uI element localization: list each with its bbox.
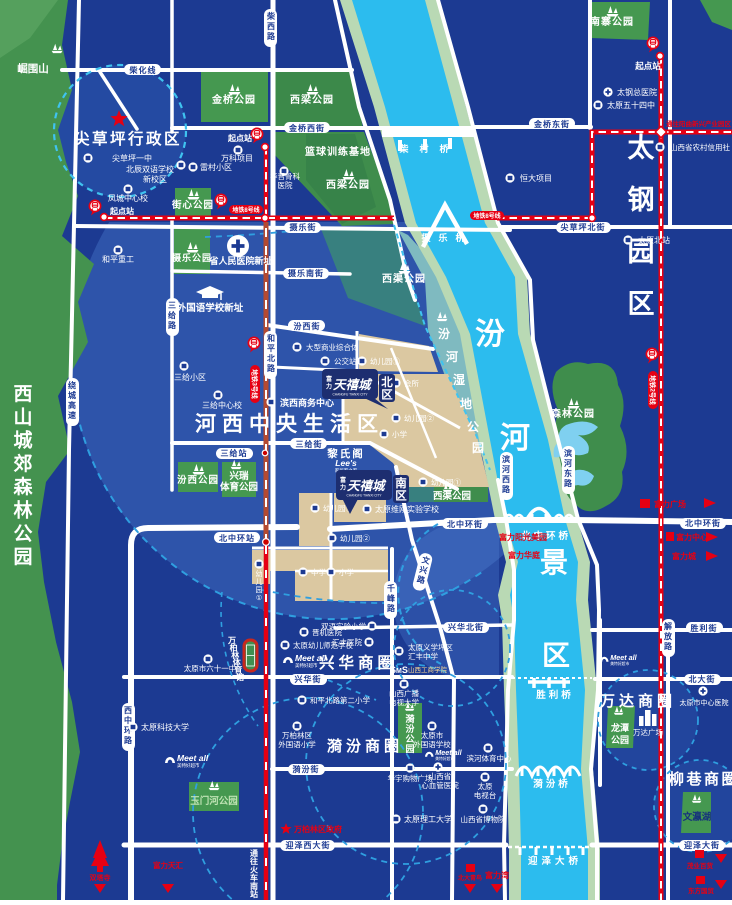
- svg-text:汾西街: 汾西街: [294, 321, 321, 331]
- svg-text:美特好超市: 美特好超市: [610, 661, 629, 666]
- svg-text:汾: 汾: [438, 326, 450, 341]
- svg-text:山西广播: 山西广播: [389, 688, 419, 698]
- svg-text:河: 河: [500, 422, 530, 455]
- svg-text:和: 和: [267, 333, 275, 343]
- svg-text:城: 城: [68, 390, 76, 400]
- svg-text:湿: 湿: [453, 372, 465, 387]
- svg-text:尖草坪行政区: 尖草坪行政区: [74, 129, 182, 148]
- svg-text:公: 公: [13, 523, 32, 545]
- svg-text:山西省农村信用社: 山西省农村信用社: [670, 142, 730, 152]
- svg-text:钢: 钢: [628, 185, 655, 215]
- svg-text:起点站: 起点站: [227, 133, 252, 143]
- svg-text:公园: 公园: [611, 735, 629, 745]
- svg-text:路: 路: [124, 735, 133, 745]
- svg-text:起点站: 起点站: [109, 206, 134, 216]
- svg-text:万达广场: 万达广场: [633, 727, 663, 737]
- svg-text:公: 公: [467, 420, 479, 434]
- svg-text:汇丰医院: 汇丰医院: [332, 637, 362, 647]
- svg-text:太原北站: 太原北站: [638, 235, 670, 245]
- svg-text:茂业百货: 茂业百货: [687, 861, 714, 870]
- svg-text:北大街: 北大街: [689, 674, 716, 684]
- svg-text:兴华商圈: 兴华商圈: [319, 653, 397, 672]
- svg-text:村: 村: [419, 143, 428, 154]
- svg-text:Meet all: Meet all: [610, 653, 637, 662]
- svg-text:迎泽西大街: 迎泽西大街: [286, 840, 331, 850]
- svg-text:幼儿园②: 幼儿园②: [404, 413, 434, 423]
- svg-text:恒大项目: 恒大项目: [520, 173, 552, 183]
- svg-text:金桥公园: 金桥公园: [211, 93, 256, 106]
- svg-text:路: 路: [267, 31, 276, 41]
- svg-text:和平重工: 和平重工: [102, 254, 134, 264]
- svg-text:地铁3号线: 地铁3号线: [251, 369, 260, 399]
- svg-text:富: 富: [326, 375, 332, 383]
- svg-text:外国语学校新址: 外国语学校新址: [176, 302, 244, 314]
- svg-text:西: 西: [267, 22, 275, 31]
- svg-text:摄乐公园: 摄乐公园: [172, 252, 212, 263]
- svg-text:解: 解: [664, 621, 672, 631]
- svg-text:通往阳曲新兴产业园区: 通往阳曲新兴产业园区: [666, 119, 732, 128]
- svg-text:电视大学: 电视大学: [389, 697, 419, 707]
- svg-text:滨河体育中心: 滨河体育中心: [467, 753, 512, 763]
- svg-text:三给小区: 三给小区: [174, 372, 206, 382]
- svg-text:胜利街: 胜利街: [690, 623, 718, 633]
- svg-text:河: 河: [502, 464, 510, 474]
- svg-text:园: 园: [472, 441, 484, 455]
- svg-text:河: 河: [564, 458, 572, 468]
- svg-text:三给站: 三给站: [221, 448, 248, 458]
- svg-text:地铁8号线: 地铁8号线: [232, 206, 259, 214]
- svg-text:太: 太: [628, 133, 656, 163]
- svg-text:崛围山: 崛围山: [17, 62, 49, 75]
- svg-text:南寨公园: 南寨公园: [590, 15, 634, 28]
- svg-text:汾西公园: 汾西公园: [177, 474, 219, 486]
- svg-text:太原科技大学: 太原科技大学: [141, 722, 189, 732]
- svg-text:玉门河公园: 玉门河公园: [190, 795, 238, 807]
- svg-text:北: 北: [267, 353, 275, 363]
- svg-text:幼儿园③: 幼儿园③: [370, 356, 400, 366]
- svg-text:区: 区: [628, 289, 655, 319]
- svg-text:漪汾街: 漪汾街: [293, 764, 320, 774]
- svg-text:龙潭: 龙潭: [610, 722, 629, 733]
- svg-text:西: 西: [124, 706, 132, 715]
- svg-text:东: 东: [564, 468, 572, 478]
- svg-text:万科项目: 万科项目: [221, 153, 253, 163]
- svg-text:迎泽大街: 迎泽大街: [684, 840, 720, 850]
- svg-text:西梁公园: 西梁公园: [326, 178, 370, 191]
- svg-text:CHANGFU TIANXI CITY: CHANGFU TIANXI CITY: [332, 393, 368, 397]
- svg-text:太原理工大学: 太原理工大学: [404, 814, 452, 824]
- svg-text:郊: 郊: [13, 452, 32, 475]
- svg-text:西渠公园: 西渠公园: [382, 272, 426, 285]
- svg-text:东方国贸: 东方国贸: [688, 886, 715, 895]
- svg-text:区: 区: [395, 490, 407, 503]
- svg-text:汾: 汾: [405, 723, 414, 734]
- svg-text:地铁2号线: 地铁2号线: [649, 375, 658, 405]
- svg-text:北大青鸟: 北大青鸟: [458, 874, 482, 882]
- svg-text:幼儿园②: 幼儿园②: [340, 533, 370, 543]
- svg-text:景: 景: [540, 547, 568, 578]
- svg-text:园: 园: [256, 586, 263, 594]
- svg-text:给: 给: [168, 310, 176, 320]
- svg-text:富力湾: 富力湾: [485, 870, 509, 880]
- svg-text:会所: 会所: [404, 378, 419, 388]
- svg-text:省人民医院新址: 省人民医院新址: [208, 255, 272, 266]
- svg-text:漪汾商圈: 漪汾商圈: [327, 737, 403, 755]
- svg-text:速: 速: [68, 410, 76, 420]
- svg-text:小学: 小学: [392, 429, 407, 439]
- svg-text:儿: 儿: [256, 578, 263, 586]
- svg-text:千: 千: [387, 583, 395, 593]
- svg-text:Lee's: Lee's: [335, 458, 357, 468]
- svg-text:美特好超市: 美特好超市: [177, 762, 200, 769]
- svg-text:汇丰中学: 汇丰中学: [408, 651, 438, 661]
- svg-text:西渠公园: 西渠公园: [433, 490, 471, 502]
- svg-text:富力城: 富力城: [672, 551, 696, 561]
- svg-text:柴: 柴: [266, 11, 276, 21]
- svg-text:街心公园: 街心公园: [171, 199, 214, 211]
- svg-text:柴: 柴: [398, 143, 409, 154]
- svg-text:园: 园: [13, 546, 32, 568]
- svg-text:摄乐街: 摄乐街: [290, 222, 317, 232]
- svg-text:区: 区: [542, 640, 570, 671]
- svg-text:中学: 中学: [311, 567, 326, 577]
- svg-text:河: 河: [445, 349, 458, 364]
- svg-text:公交站: 公交站: [334, 356, 357, 366]
- svg-text:林: 林: [13, 499, 32, 522]
- svg-text:凤城中心校: 凤城中心校: [108, 193, 148, 203]
- svg-text:新校区: 新校区: [143, 174, 167, 184]
- svg-text:北中环街: 北中环街: [685, 518, 721, 528]
- svg-text:幼: 幼: [256, 569, 263, 578]
- svg-text:力: 力: [340, 484, 346, 492]
- svg-text:幼儿园①: 幼儿园①: [431, 477, 461, 487]
- svg-text:美特好超市: 美特好超市: [435, 756, 454, 761]
- svg-text:摄乐桥: 摄乐桥: [421, 232, 472, 243]
- svg-text:南: 南: [395, 476, 407, 490]
- svg-text:路: 路: [387, 603, 396, 613]
- svg-text:高: 高: [68, 400, 76, 410]
- svg-text:双塔寺: 双塔寺: [90, 873, 111, 882]
- svg-text:路: 路: [267, 363, 276, 373]
- svg-text:柴化线: 柴化线: [129, 65, 157, 75]
- svg-text:Meet all: Meet all: [435, 748, 462, 757]
- svg-text:漪: 漪: [405, 713, 414, 724]
- svg-text:北辰双语学校: 北辰双语学校: [126, 164, 174, 174]
- svg-text:路: 路: [564, 478, 573, 488]
- svg-text:山西工商学院: 山西工商学院: [408, 665, 448, 674]
- svg-text:兴瑞: 兴瑞: [229, 470, 249, 482]
- svg-text:滨: 滨: [564, 448, 572, 458]
- svg-text:天禧城: 天禧城: [333, 378, 373, 392]
- svg-text:雷村小区: 雷村小区: [200, 162, 232, 172]
- svg-text:起点站: 起点站: [634, 61, 661, 71]
- svg-text:胜利桥: 胜利桥: [535, 689, 574, 701]
- svg-text:三给街: 三给街: [296, 439, 323, 449]
- svg-text:太原义学坪区: 太原义学坪区: [408, 642, 453, 652]
- svg-text:馆: 馆: [236, 672, 244, 682]
- svg-text:太钢总医院: 太钢总医院: [617, 87, 657, 97]
- svg-text:山西省: 山西省: [429, 771, 452, 781]
- svg-text:万达商圈: 万达商圈: [599, 692, 676, 710]
- svg-text:富力阳光美园: 富力阳光美园: [499, 532, 547, 542]
- svg-text:山西省博物院: 山西省博物院: [461, 814, 506, 824]
- svg-text:桥: 桥: [439, 143, 449, 154]
- svg-text:柳巷商圈: 柳巷商圈: [669, 770, 732, 788]
- svg-text:西: 西: [13, 384, 32, 405]
- svg-text:滨: 滨: [502, 454, 510, 464]
- svg-text:兴华街: 兴华街: [295, 674, 322, 684]
- svg-text:漪汾桥: 漪汾桥: [533, 778, 571, 790]
- svg-text:外国语小学: 外国语小学: [278, 739, 316, 749]
- svg-text:三: 三: [168, 301, 176, 310]
- svg-text:放: 放: [663, 631, 673, 641]
- svg-text:西梁公园: 西梁公园: [290, 93, 334, 106]
- svg-text:太原市: 太原市: [421, 730, 444, 740]
- svg-text:尖草坪一中: 尖草坪一中: [112, 153, 152, 163]
- svg-text:美特好超市: 美特好超市: [295, 662, 318, 669]
- svg-text:富力广场: 富力广场: [654, 499, 686, 509]
- svg-text:Meet all: Meet all: [177, 753, 209, 763]
- svg-text:体育公园: 体育公园: [220, 481, 258, 493]
- svg-text:北中环街: 北中环街: [447, 519, 483, 529]
- svg-text:峰: 峰: [387, 593, 395, 603]
- svg-text:太原维刚实验学校: 太原维刚实验学校: [375, 504, 439, 514]
- svg-text:平: 平: [267, 344, 275, 353]
- svg-text:①: ①: [256, 594, 262, 602]
- svg-text:金桥东街: 金桥东街: [533, 119, 570, 129]
- svg-text:金桥西街: 金桥西街: [288, 123, 325, 133]
- svg-text:地铁8号线: 地铁8号线: [473, 212, 500, 220]
- svg-text:西: 西: [502, 475, 510, 484]
- svg-text:力: 力: [326, 383, 332, 391]
- svg-text:万柏林区: 万柏林区: [282, 730, 312, 740]
- svg-text:太原: 太原: [478, 781, 493, 791]
- svg-text:山: 山: [13, 406, 32, 428]
- svg-text:森: 森: [13, 475, 33, 498]
- svg-text:双语实验小学: 双语实验小学: [321, 621, 366, 631]
- svg-text:尖草坪北街: 尖草坪北街: [561, 222, 606, 232]
- svg-text:心血管医院: 心血管医院: [421, 780, 459, 790]
- svg-text:天禧城: 天禧城: [347, 479, 387, 493]
- svg-text:路: 路: [664, 641, 673, 651]
- svg-text:富: 富: [340, 476, 346, 484]
- svg-text:迎泽大桥: 迎泽大桥: [528, 855, 582, 867]
- svg-text:CHANGFU TIANXI CITY: CHANGFU TIANXI CITY: [346, 494, 382, 498]
- svg-text:万柏林区政府: 万柏林区政府: [293, 824, 342, 834]
- svg-text:站: 站: [250, 889, 258, 899]
- svg-text:和平北路第二小学: 和平北路第二小学: [310, 695, 370, 705]
- svg-text:医院: 医院: [278, 180, 293, 190]
- svg-text:三给中心校: 三给中心校: [202, 400, 242, 410]
- svg-text:区: 区: [381, 389, 393, 402]
- svg-text:电视台: 电视台: [474, 790, 497, 800]
- svg-text:小学: 小学: [339, 567, 354, 577]
- svg-text:汾: 汾: [475, 318, 505, 351]
- svg-text:北中环站: 北中环站: [219, 533, 255, 543]
- svg-text:富力华庭: 富力华庭: [508, 550, 541, 560]
- svg-text:太原市六十一中: 太原市六十一中: [184, 663, 237, 673]
- svg-text:森林公园: 森林公园: [550, 407, 595, 420]
- svg-text:文瀛湖: 文瀛湖: [682, 811, 712, 823]
- svg-text:大型商业综合体: 大型商业综合体: [306, 342, 359, 352]
- svg-text:篮球训练基地: 篮球训练基地: [304, 145, 371, 158]
- svg-text:路: 路: [168, 320, 177, 330]
- svg-text:富力天汇: 富力天汇: [153, 860, 183, 870]
- svg-text:摄乐南街: 摄乐南街: [288, 268, 324, 278]
- svg-text:富力中心: 富力中心: [676, 532, 708, 542]
- svg-text:绕: 绕: [68, 380, 76, 390]
- svg-text:河西中央生活区: 河西中央生活区: [195, 412, 384, 436]
- svg-text:兴华北街: 兴华北街: [448, 622, 484, 632]
- svg-text:北: 北: [381, 375, 393, 389]
- svg-text:路: 路: [502, 484, 511, 494]
- svg-text:华晋骨科: 华晋骨科: [270, 171, 300, 181]
- svg-text:太原市中心医院: 太原市中心医院: [680, 698, 729, 707]
- svg-text:太原五十四中: 太原五十四中: [607, 100, 655, 110]
- svg-text:城: 城: [13, 429, 32, 452]
- svg-text:地: 地: [460, 396, 472, 411]
